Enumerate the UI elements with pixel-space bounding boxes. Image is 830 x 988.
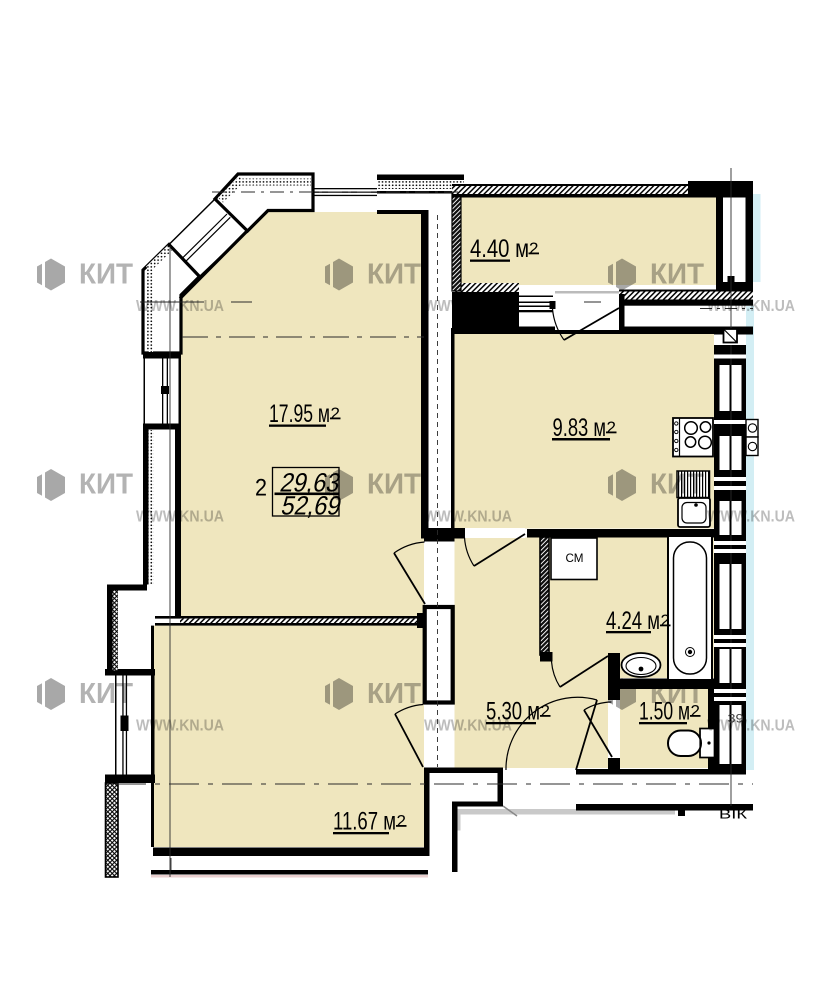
svg-text:КИТ: КИТ bbox=[367, 469, 421, 501]
svg-text:2: 2 bbox=[331, 404, 340, 423]
svg-text:КИТ: КИТ bbox=[650, 469, 704, 501]
svg-text:WWW.KN.UA: WWW.KN.UA bbox=[136, 718, 224, 735]
svg-text:КИТ: КИТ bbox=[367, 259, 421, 291]
svg-text:WWW.KN.UA: WWW.KN.UA bbox=[424, 509, 512, 526]
svg-text:КИТ: КИТ bbox=[79, 469, 133, 501]
svg-text:ВІК: ВІК bbox=[719, 808, 748, 822]
svg-text:КИТ: КИТ bbox=[650, 259, 704, 291]
svg-text:WWW.KN.UA: WWW.KN.UA bbox=[707, 298, 795, 315]
svg-text:9.83 м: 9.83 м bbox=[553, 414, 607, 442]
svg-text:4.40 м: 4.40 м bbox=[470, 235, 529, 263]
svg-text:2: 2 bbox=[397, 812, 406, 831]
svg-text:2: 2 bbox=[529, 239, 538, 258]
svg-text:4.24 м: 4.24 м bbox=[606, 607, 660, 635]
svg-text:2: 2 bbox=[541, 702, 550, 721]
svg-text:2: 2 bbox=[255, 475, 267, 502]
svg-text:СМ: СМ bbox=[566, 551, 584, 565]
svg-text:КИТ: КИТ bbox=[367, 678, 421, 710]
svg-text:2: 2 bbox=[607, 418, 616, 437]
svg-text:КИТ: КИТ bbox=[650, 678, 704, 710]
svg-text:11.67 м: 11.67 м bbox=[333, 808, 396, 836]
svg-text:2: 2 bbox=[661, 611, 670, 630]
svg-text:17.95 м: 17.95 м bbox=[269, 400, 330, 428]
svg-text:КИТ: КИТ bbox=[79, 259, 133, 291]
svg-text:КИТ: КИТ bbox=[79, 678, 133, 710]
svg-text:WWW.KN.UA: WWW.KN.UA bbox=[707, 718, 795, 735]
svg-text:WWW.KN.UA: WWW.KN.UA bbox=[424, 718, 512, 735]
svg-text:WWW.KN.UA: WWW.KN.UA bbox=[707, 509, 795, 526]
svg-text:WWW.KN.UA: WWW.KN.UA bbox=[136, 509, 224, 526]
svg-text:WWW.KN.UA: WWW.KN.UA bbox=[424, 298, 512, 315]
svg-text:WWW.KN.UA: WWW.KN.UA bbox=[136, 298, 224, 315]
